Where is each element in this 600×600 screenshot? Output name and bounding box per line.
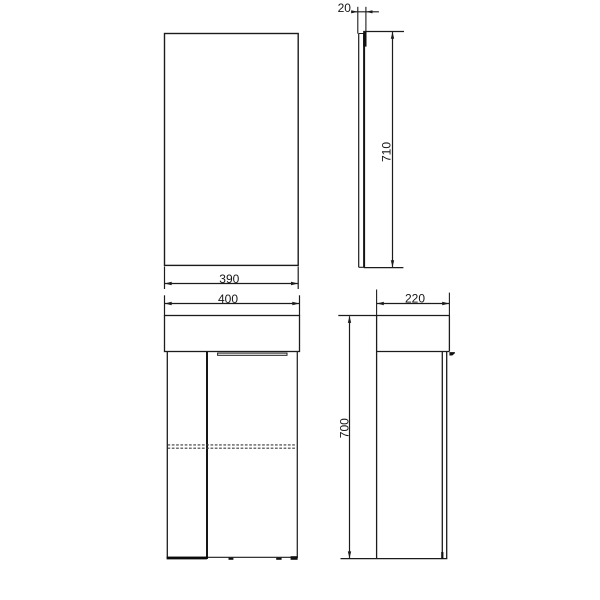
svg-text:390: 390 [219, 272, 239, 286]
svg-text:400: 400 [218, 292, 238, 306]
svg-text:20: 20 [338, 1, 352, 15]
svg-text:700: 700 [338, 418, 352, 438]
svg-text:710: 710 [380, 142, 394, 162]
